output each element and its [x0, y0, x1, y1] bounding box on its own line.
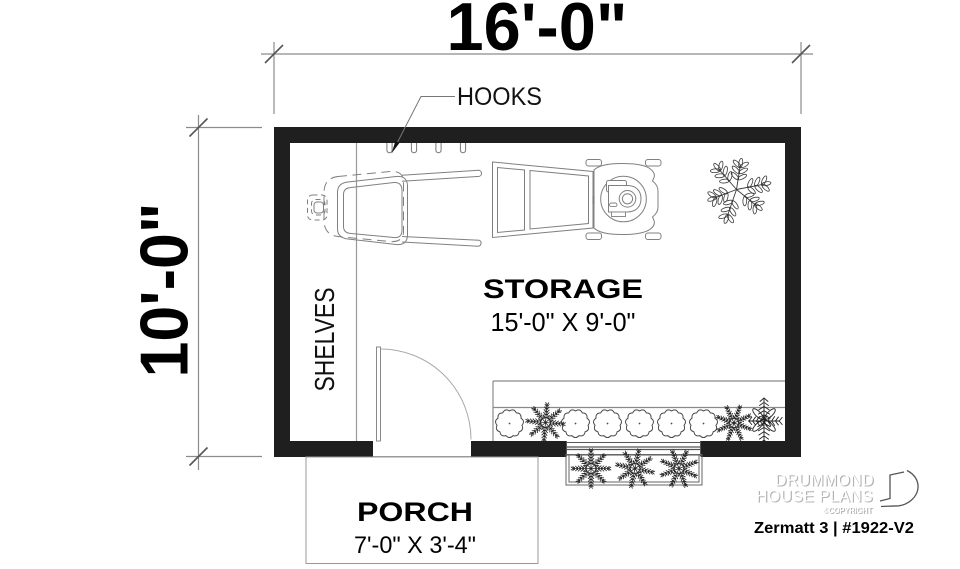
- svg-text:10'-0": 10'-0": [128, 203, 203, 378]
- svg-text:PORCH: PORCH: [357, 497, 473, 527]
- svg-text:Zermatt 3 | #1922-V2: Zermatt 3 | #1922-V2: [754, 520, 914, 537]
- svg-text:16'-0": 16'-0": [447, 0, 628, 65]
- svg-text:SHELVES: SHELVES: [309, 288, 340, 392]
- svg-text:7'-0" X 3'-4": 7'-0" X 3'-4": [354, 532, 476, 559]
- svg-text:STORAGE: STORAGE: [483, 274, 643, 304]
- svg-text:HOOKS: HOOKS: [457, 83, 542, 111]
- svg-text:©COPYRIGHT: ©COPYRIGHT: [823, 506, 872, 515]
- svg-text:15'-0" X 9'-0": 15'-0" X 9'-0": [491, 307, 636, 337]
- svg-text:HOUSE PLANS: HOUSE PLANS: [756, 487, 873, 506]
